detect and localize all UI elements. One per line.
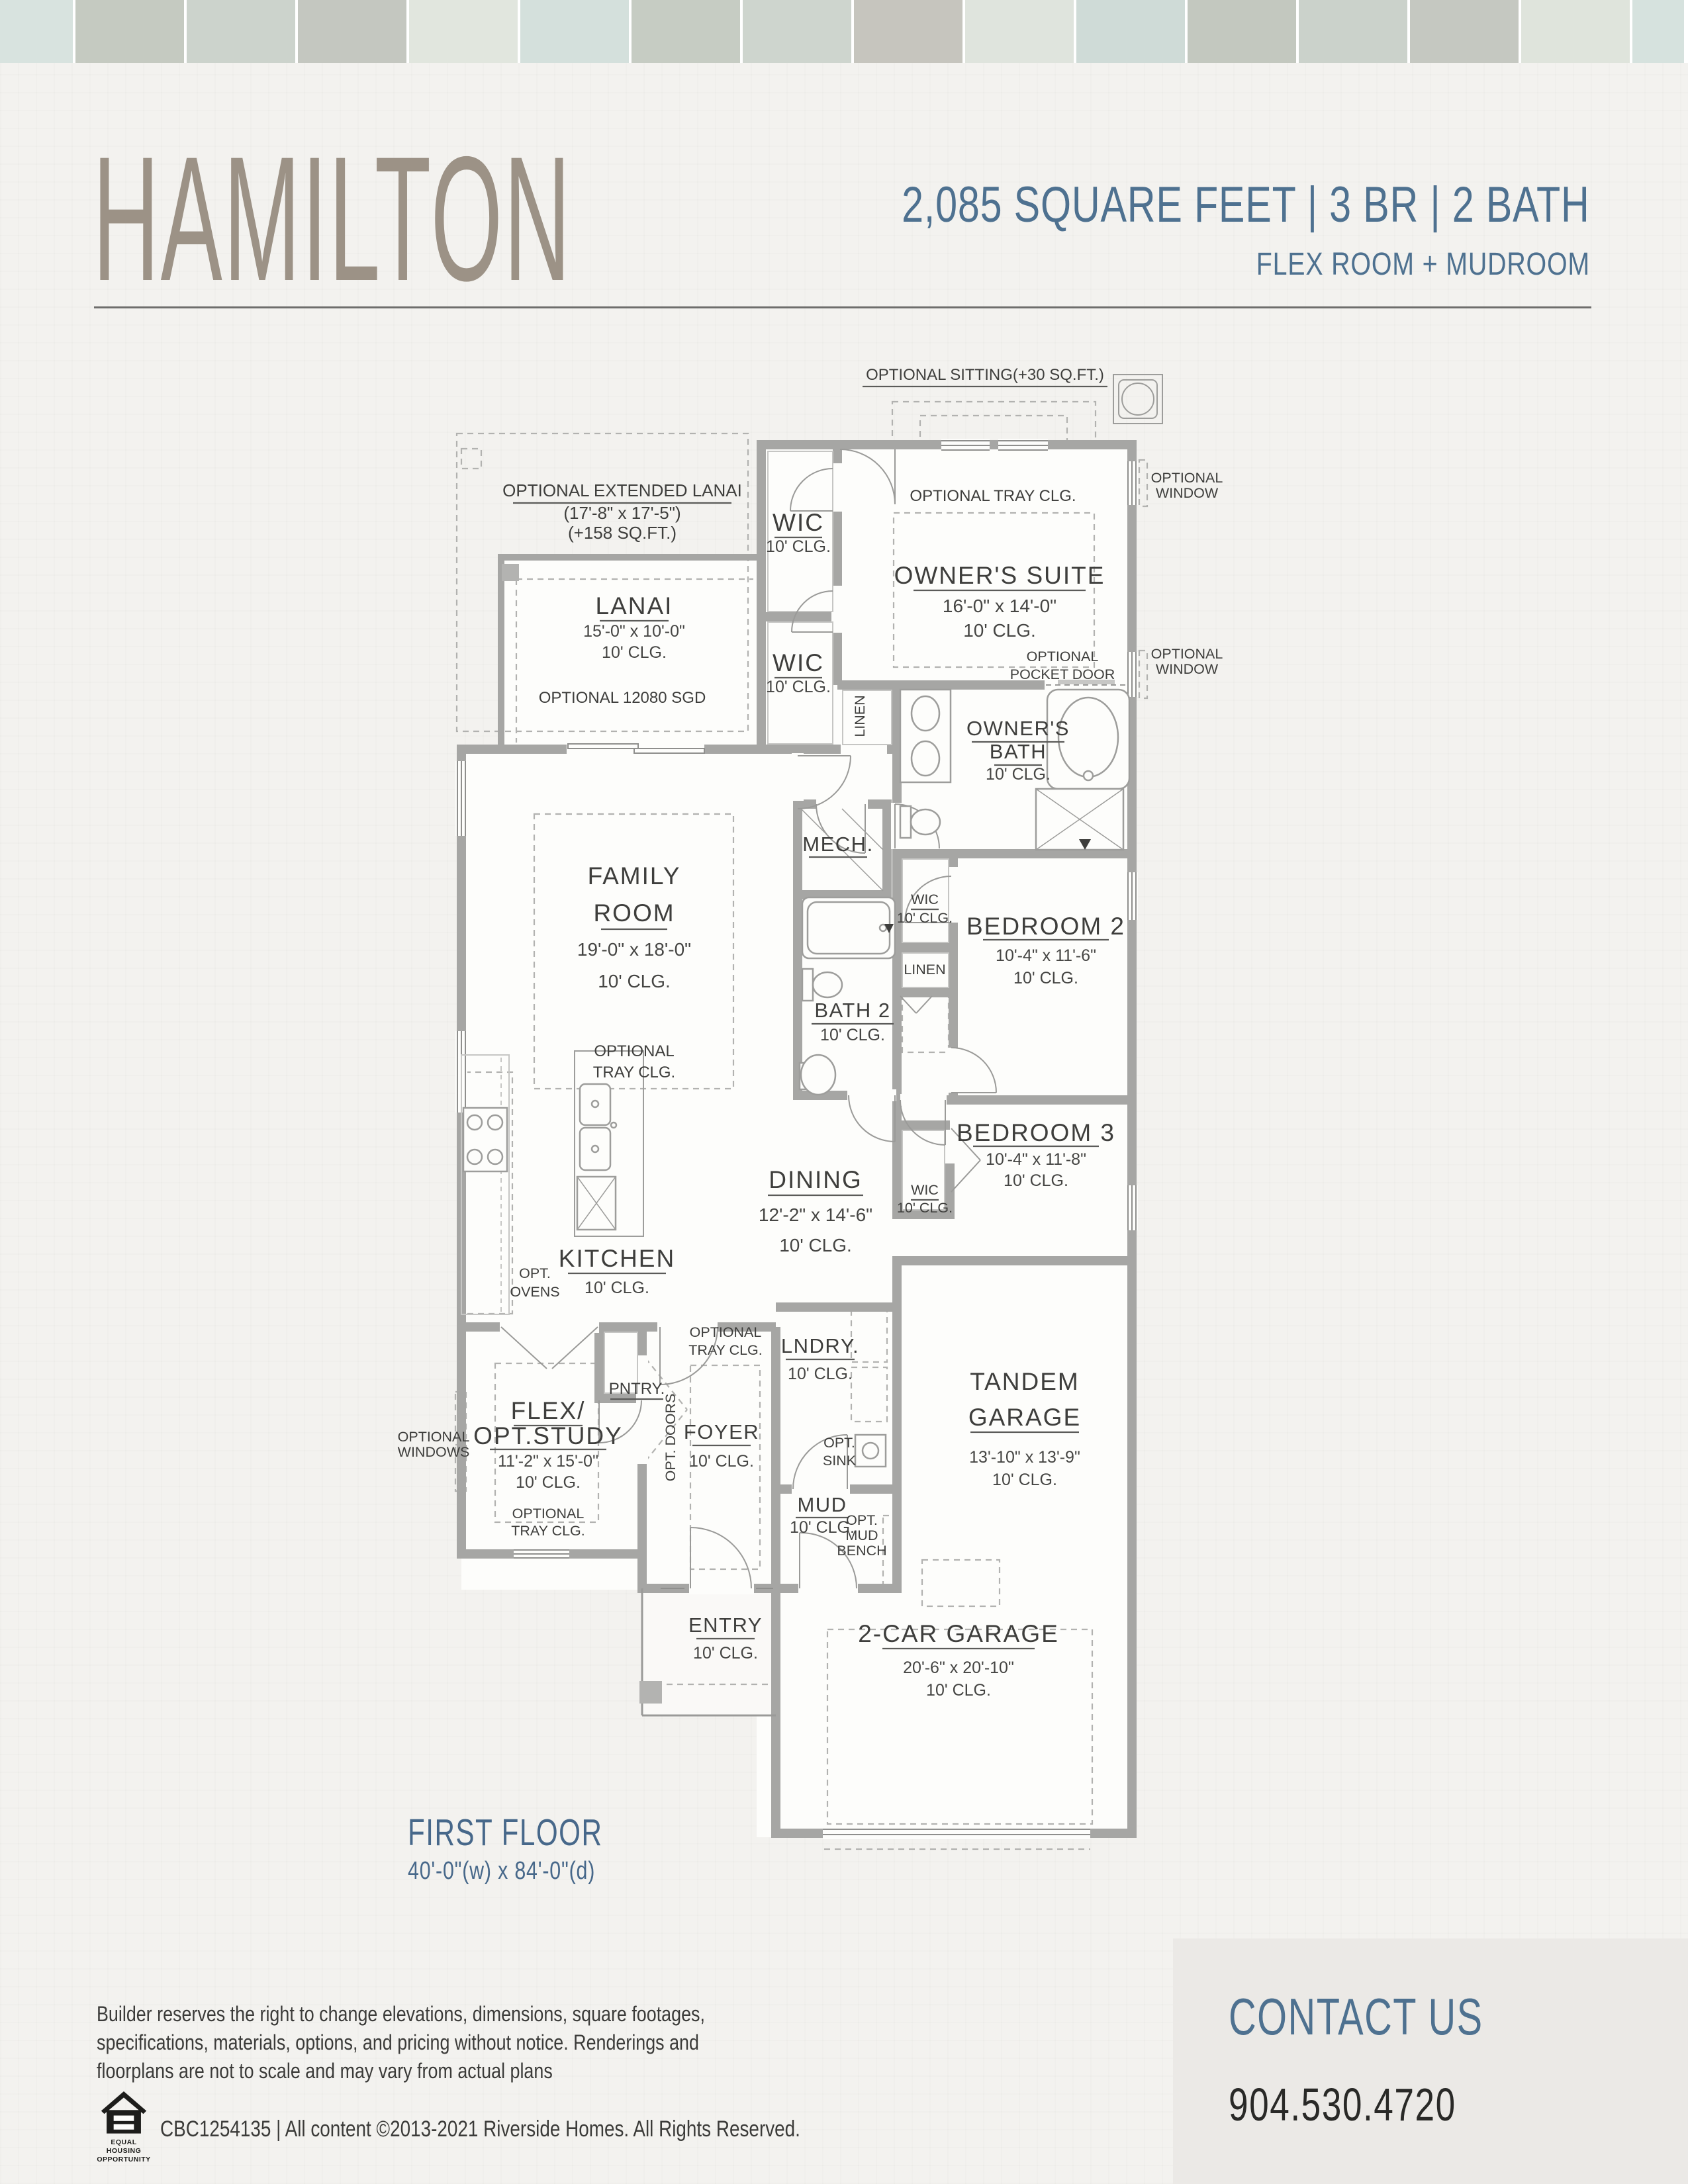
label-entry: ENTRY (688, 1614, 763, 1637)
label-bedroom3-dims: 10'-4" x 11'-8" (986, 1150, 1086, 1169)
label-owners-suite-dims: 16'-0" x 14'-0" (943, 596, 1056, 616)
label-family-dims: 19'-0" x 18'-0" (577, 939, 691, 960)
label-opt-ovens1: OPT. (519, 1265, 551, 1281)
label-ext-lanai-dims: (17'-8" x 17'-5") (563, 503, 680, 523)
label-dining: DINING (769, 1166, 863, 1193)
label-bath2-clg: 10' CLG. (820, 1026, 885, 1044)
label-foyer-clg: 10' CLG. (689, 1452, 754, 1471)
label-linen1: LINEN (852, 695, 868, 737)
label-2car-clg: 10' CLG. (926, 1681, 991, 1700)
label-lanai-sgd: OPTIONAL 12080 SGD (539, 689, 706, 707)
label-2car: 2-CAR GARAGE (858, 1620, 1059, 1647)
disclaimer-line1: Builder reserves the right to change ele… (97, 2000, 705, 2028)
label-opt-sink2: SINK (823, 1453, 857, 1469)
label-mud-bench3: BENCH (837, 1543, 886, 1559)
label-opt-ovens2: OVENS (510, 1284, 559, 1300)
eho-text-line2: OPPORTUNITY (97, 2156, 151, 2164)
label-owners-suite-clg: 10' CLG. (963, 620, 1036, 641)
label-wic2-clg: 10' CLG. (766, 678, 831, 696)
label-wic2: WIC (773, 649, 824, 676)
label-linen2: LINEN (904, 962, 945, 978)
label-opt-sink1: OPT. (823, 1435, 855, 1451)
label-lanai-dims: 15'-0" x 10'-0" (583, 622, 685, 641)
label-family-tray2: TRAY CLG. (593, 1064, 675, 1081)
label-wic-b3: WIC (911, 1182, 939, 1198)
label-flex1: FLEX/ (511, 1397, 586, 1424)
label-ext-lanai: OPTIONAL EXTENDED LANAI (502, 480, 742, 500)
disclaimer: Builder reserves the right to change ele… (97, 2000, 705, 2085)
contact-heading: CONTACT US (1229, 1987, 1483, 2047)
label-optional-sitting: OPTIONAL SITTING(+30 SQ.FT.) (866, 366, 1104, 384)
disclaimer-line3: floorplans are not to scale and may vary… (97, 2057, 705, 2085)
label-2car-dims: 20'-6" x 20'-10" (903, 1659, 1014, 1677)
label-family2: ROOM (593, 899, 675, 927)
license-line: CBC1254135 | All content ©2013-2021 Rive… (160, 2116, 800, 2142)
first-floor-dims: 40'-0"(w) x 84'-0"(d) (408, 1857, 595, 1886)
label-opt-window-b2: WINDOW (1156, 661, 1219, 677)
label-owners-bath-clg: 10' CLG. (986, 765, 1051, 784)
label-wic-b2: WIC (911, 891, 939, 907)
label-owners-suite: OWNER'S SUITE (894, 562, 1105, 589)
label-family-clg: 10' CLG. (598, 971, 671, 991)
label-opt-window-a1: OPTIONAL (1151, 470, 1223, 486)
label-mud-bench1: OPT. (846, 1512, 878, 1528)
label-bath2: BATH 2 (814, 999, 890, 1022)
label-wic1: WIC (773, 509, 824, 536)
label-bedroom2: BEDROOM 2 (966, 913, 1125, 940)
label-mech: MECH. (802, 833, 873, 856)
first-floor-heading: FIRST FLOOR (408, 1811, 602, 1854)
label-mud: MUD (797, 1493, 847, 1516)
label-flex-dims: 11'-2" x 15'-0" (498, 1452, 598, 1471)
label-bedroom2-clg: 10' CLG. (1013, 969, 1078, 987)
label-lndry-clg: 10' CLG. (788, 1365, 853, 1383)
equal-housing-house-icon (100, 2091, 148, 2135)
label-mud-bench2: MUD (846, 1527, 878, 1543)
label-kitchen-clg: 10' CLG. (585, 1279, 649, 1297)
label-pantry: PNTRY. (609, 1380, 665, 1398)
label-wic-b2-clg: 10' CLG. (897, 910, 953, 926)
label-dining-dims: 12'-2" x 14'-6" (759, 1205, 872, 1225)
label-flex2: OPT.STUDY (473, 1422, 623, 1449)
label-foyer-tray1: OPTIONAL (690, 1324, 762, 1340)
label-opt-window-a2: WINDOW (1156, 485, 1219, 501)
label-foyer-tray2: TRAY CLG. (688, 1342, 763, 1358)
label-dining-clg: 10' CLG. (779, 1235, 852, 1255)
label-flex-clg: 10' CLG. (516, 1473, 581, 1492)
label-lndry: LNDRY. (781, 1334, 859, 1357)
label-tandem2: GARAGE (968, 1404, 1081, 1431)
label-opt-windows2: WINDOWS (398, 1444, 470, 1460)
label-bedroom3: BEDROOM 3 (957, 1119, 1115, 1146)
label-flex-tray1: OPTIONAL (512, 1506, 585, 1522)
equal-housing-logo: EQUAL HOUSING OPPORTUNITY (97, 2091, 151, 2164)
label-opt-window-b1: OPTIONAL (1151, 646, 1223, 662)
label-lanai-clg: 10' CLG. (602, 643, 667, 662)
label-owners-bath2: BATH (990, 740, 1047, 763)
label-opt-doors: OPT. DOORS (663, 1394, 679, 1482)
label-lanai: LANAI (596, 592, 673, 619)
label-family1: FAMILY (588, 862, 681, 889)
label-suite-tray: OPTIONAL TRAY CLG. (910, 487, 1076, 505)
label-tandem-clg: 10' CLG. (992, 1471, 1057, 1489)
label-pocket-door2: POCKET DOOR (1010, 666, 1115, 682)
label-tandem-dims: 13'-10" x 13'-9" (969, 1448, 1080, 1467)
label-entry-clg: 10' CLG. (693, 1644, 758, 1662)
floorplan-drawing: OPTIONAL SITTING(+30 SQ.FT.) OPTIONAL TR… (0, 0, 1688, 2184)
disclaimer-line2: specifications, materials, options, and … (97, 2028, 705, 2057)
label-pocket-door1: OPTIONAL (1027, 649, 1099, 664)
label-bedroom3-clg: 10' CLG. (1004, 1171, 1068, 1190)
label-bedroom2-dims: 10'-4" x 11'-6" (996, 946, 1096, 965)
label-owners-bath1: OWNER'S (966, 717, 1070, 740)
label-mud-clg: 10' CLG. (790, 1518, 855, 1537)
contact-phone: 904.530.4720 (1229, 2078, 1456, 2131)
label-flex-tray2: TRAY CLG. (511, 1523, 585, 1539)
label-family-tray1: OPTIONAL (594, 1042, 674, 1060)
label-ext-lanai-sqft: (+158 SQ.FT.) (568, 523, 677, 543)
label-wic1-clg: 10' CLG. (766, 537, 831, 556)
label-opt-windows1: OPTIONAL (398, 1429, 470, 1445)
eho-text-line1: EQUAL HOUSING (97, 2138, 151, 2156)
flyer-page: HAMILTON 2,085 SQUARE FEET | 3 BR | 2 BA… (0, 0, 1688, 2184)
label-tandem1: TANDEM (970, 1368, 1079, 1395)
label-foyer: FOYER (684, 1420, 759, 1443)
label-wic-b3-clg: 10' CLG. (897, 1200, 953, 1216)
label-kitchen: KITCHEN (559, 1245, 675, 1272)
